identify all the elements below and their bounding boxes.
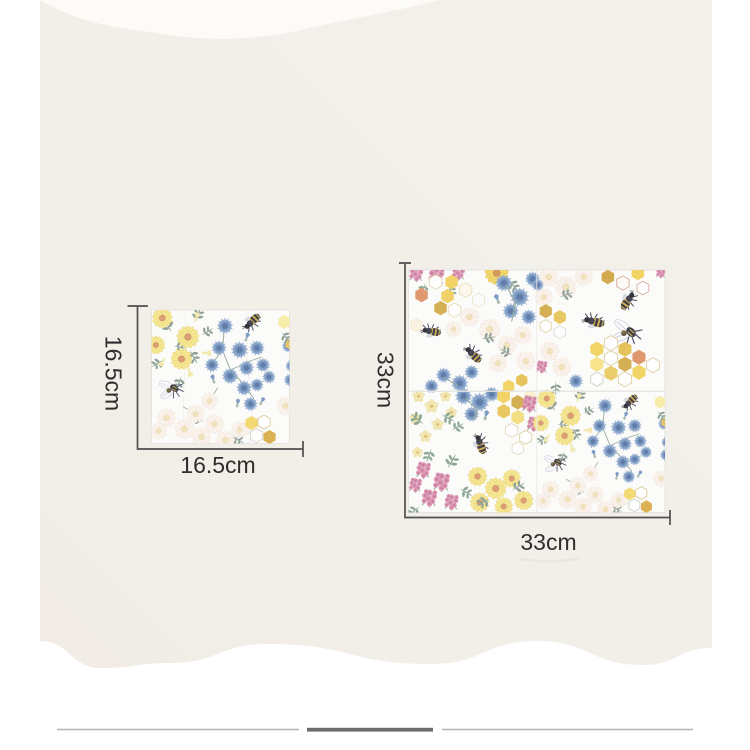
svg-text:33cm: 33cm bbox=[520, 529, 576, 555]
svg-text:16.5cm: 16.5cm bbox=[101, 336, 127, 411]
svg-text:33cm: 33cm bbox=[373, 352, 399, 408]
svg-text:16.5cm: 16.5cm bbox=[180, 452, 255, 478]
